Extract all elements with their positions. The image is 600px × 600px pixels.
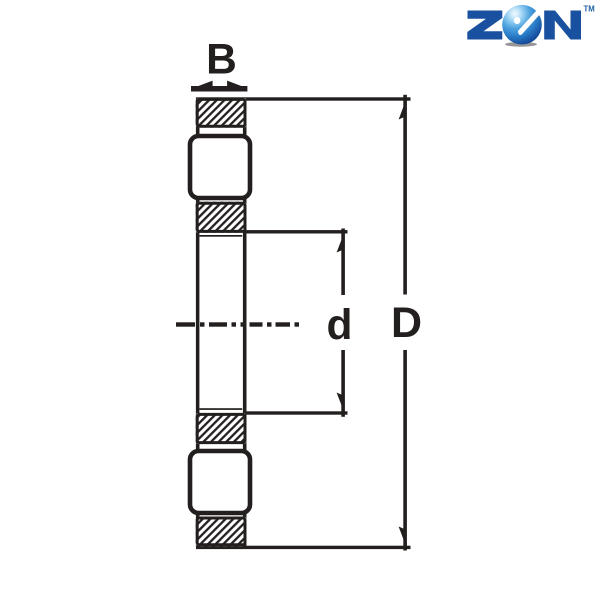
svg-text:D: D [391, 299, 422, 347]
svg-text:TM: TM [584, 5, 595, 14]
svg-text:B: B [206, 36, 237, 83]
svg-text:d: d [327, 302, 353, 349]
